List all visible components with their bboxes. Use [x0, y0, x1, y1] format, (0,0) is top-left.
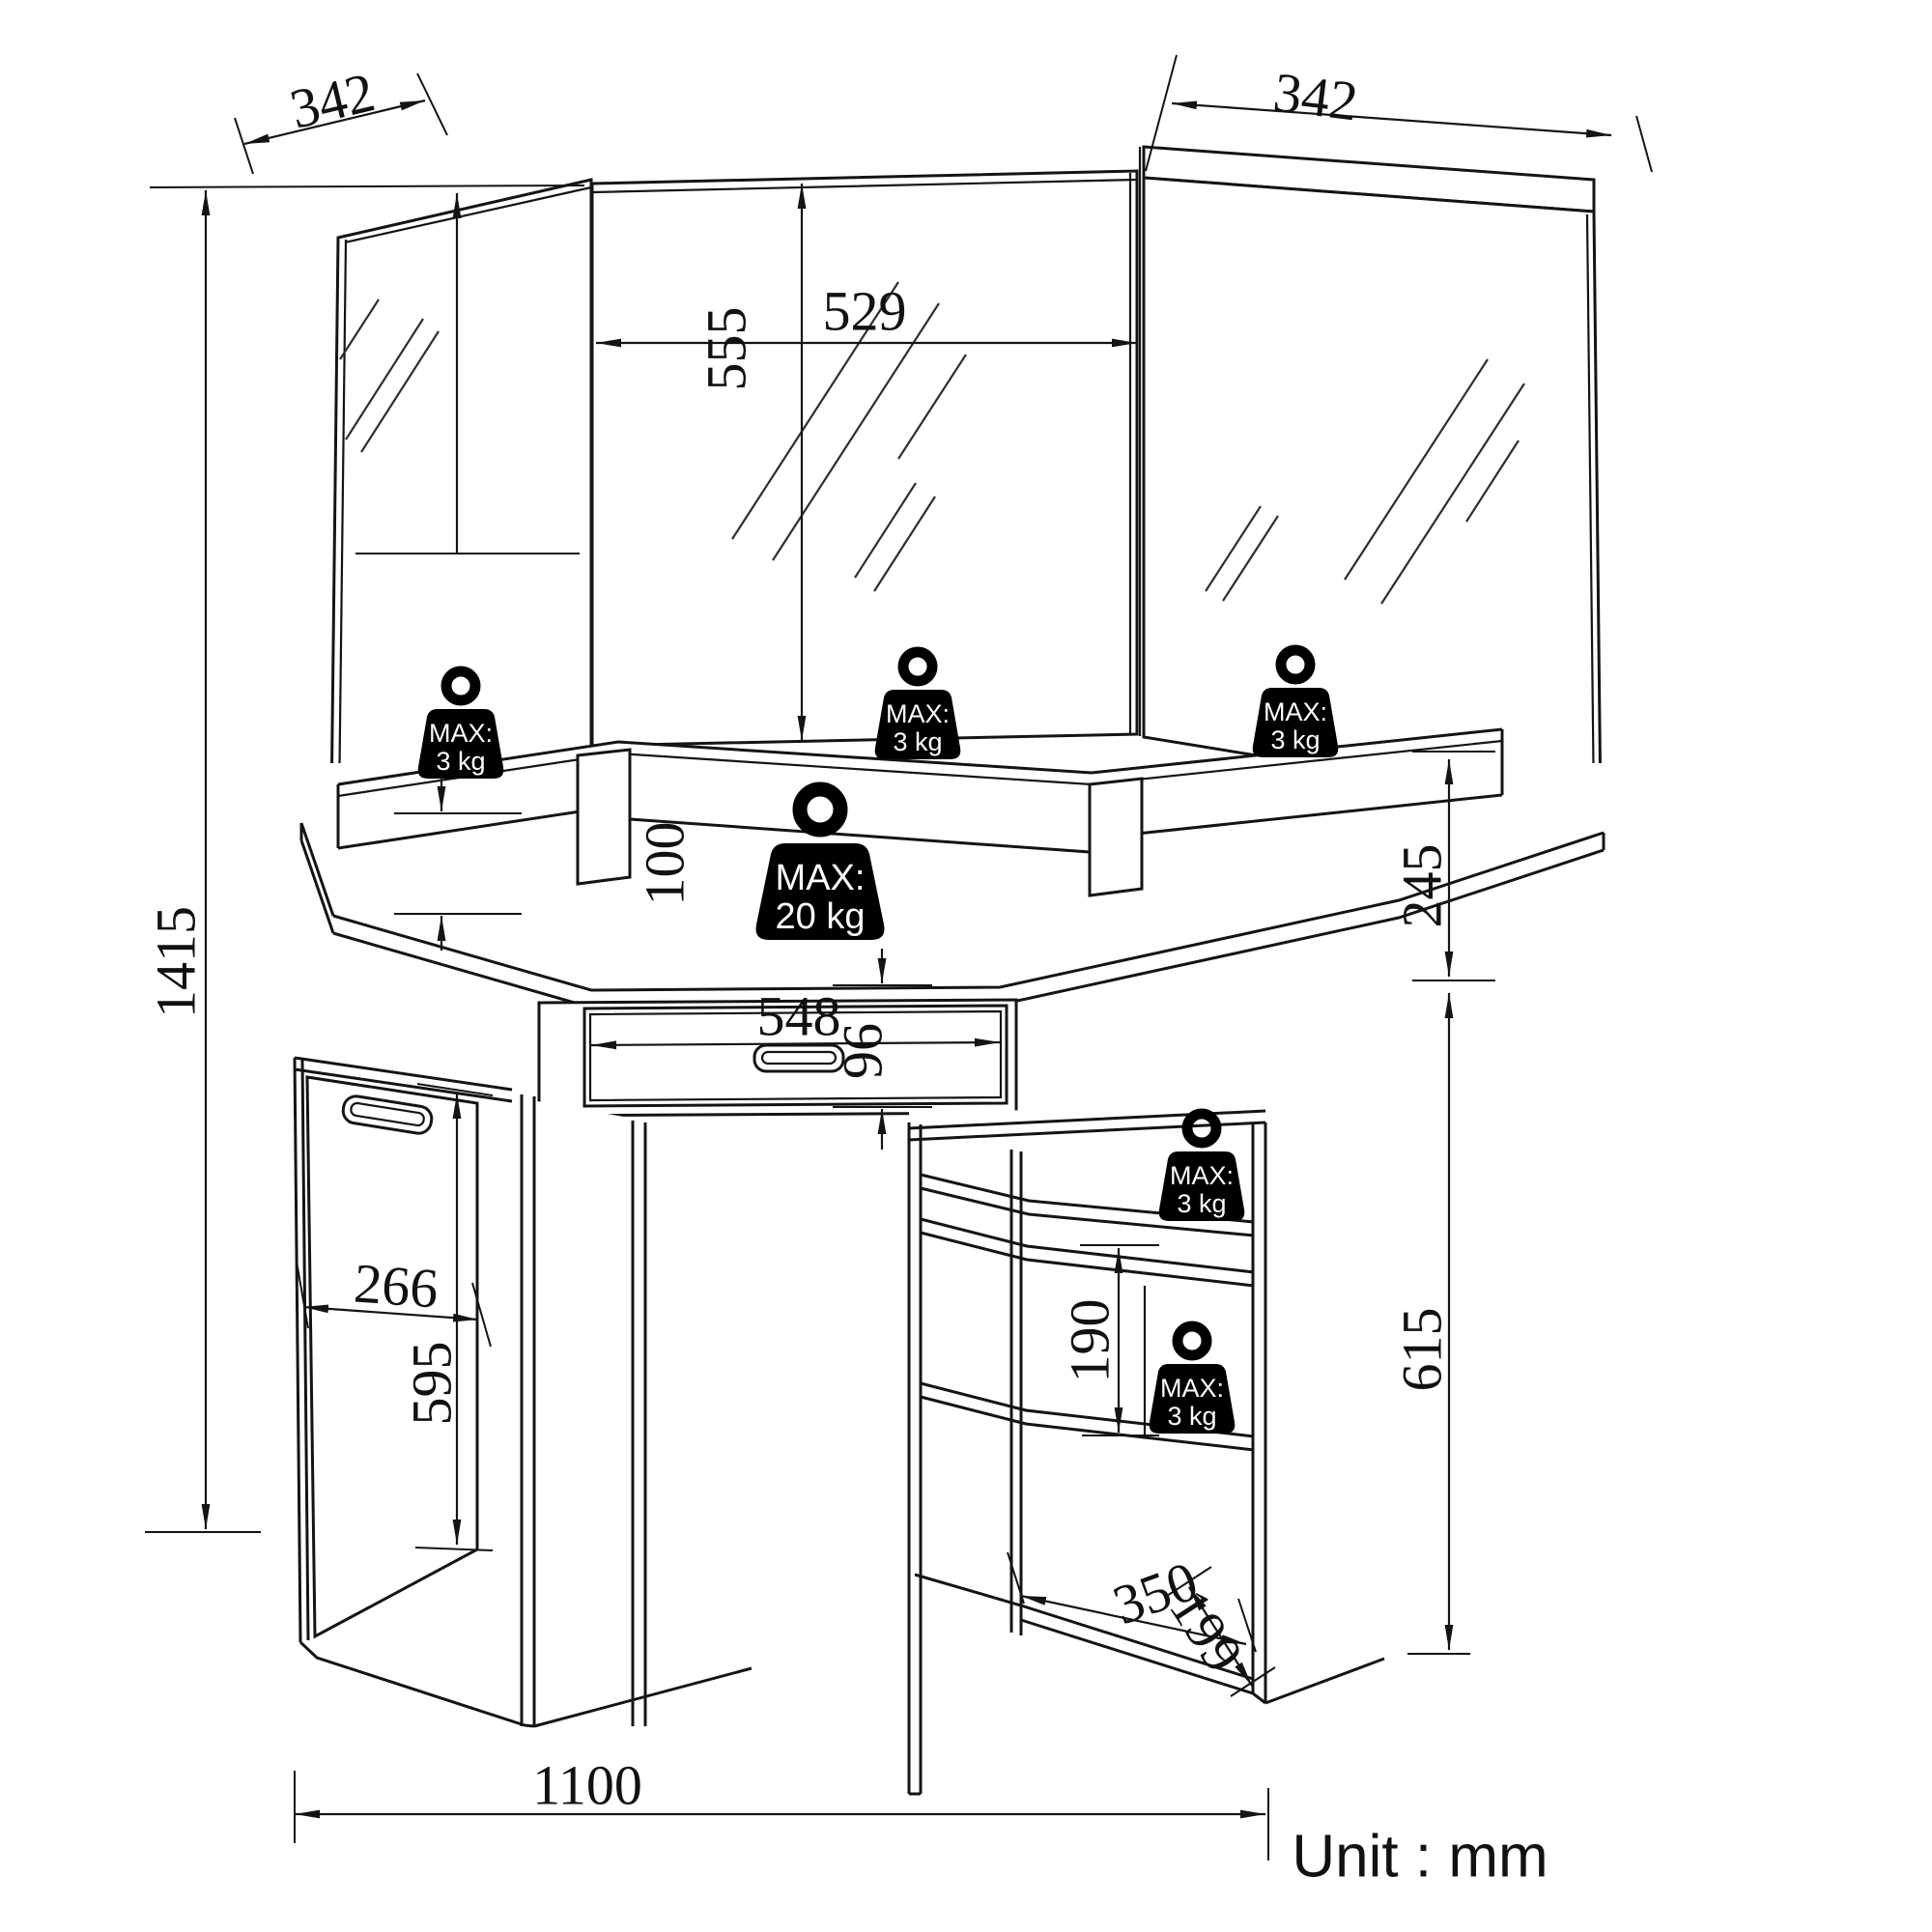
unit-leg-fill: [909, 1122, 921, 1794]
drawer-handle[interactable]: [754, 1045, 843, 1071]
right-mirror-panel: [1144, 178, 1601, 811]
dim-label-overall-width: 1100: [532, 1754, 642, 1817]
load-limit-value: 3 kg: [436, 747, 485, 776]
dim-label-overall-height: 1415: [145, 906, 208, 1018]
load-limit-value: 3 kg: [893, 727, 942, 756]
load-limit-label: MAX:: [1160, 1374, 1224, 1403]
load-limit-label: MAX:: [1264, 697, 1327, 726]
unit-note: Unit : mm: [1292, 1824, 1548, 1890]
dim-label-door-width: 266: [352, 1252, 440, 1321]
furniture-dimension-drawing: MAX: 3 kg MAX: 3 kg MAX: 3 kg MAX: 20 kg…: [0, 0, 1932, 1932]
load-limit-value: 20 kg: [776, 896, 866, 937]
dim-label-center-mirror-width: 529: [823, 280, 907, 343]
load-limit-value: 3 kg: [1270, 725, 1320, 754]
cabinet-fill: [295, 1058, 645, 1729]
dim-label-center-mirror-height: 555: [696, 307, 758, 391]
load-limit-label: MAX:: [886, 699, 950, 728]
dim-label-drawer-front-height: 96: [832, 1023, 895, 1079]
dim-label-mirror-right-width: 342: [1270, 60, 1361, 132]
rail-right-support-panel: [1090, 779, 1142, 895]
dim-label-door-height: 595: [401, 1342, 464, 1426]
load-limit-label: MAX:: [429, 719, 493, 748]
center-mirror-panel: [592, 171, 1137, 746]
load-limit-value: 3 kg: [1177, 1189, 1226, 1218]
dim-label-shelf-spacing: 190: [1059, 1299, 1122, 1383]
dim-label-shelf-riser-height: 100: [634, 822, 696, 906]
load-limit-value: 3 kg: [1167, 1402, 1216, 1431]
trifold-mirror: [331, 147, 1601, 811]
dim-label-side-unit-height: 615: [1391, 1308, 1454, 1392]
dim-label-drawer-width: 548: [757, 985, 841, 1048]
rail-left-support-panel: [578, 750, 630, 884]
load-limit-label: MAX:: [776, 858, 866, 898]
load-limit-label: MAX:: [1170, 1161, 1234, 1190]
dim-label-upper-section-height: 245: [1391, 844, 1454, 928]
